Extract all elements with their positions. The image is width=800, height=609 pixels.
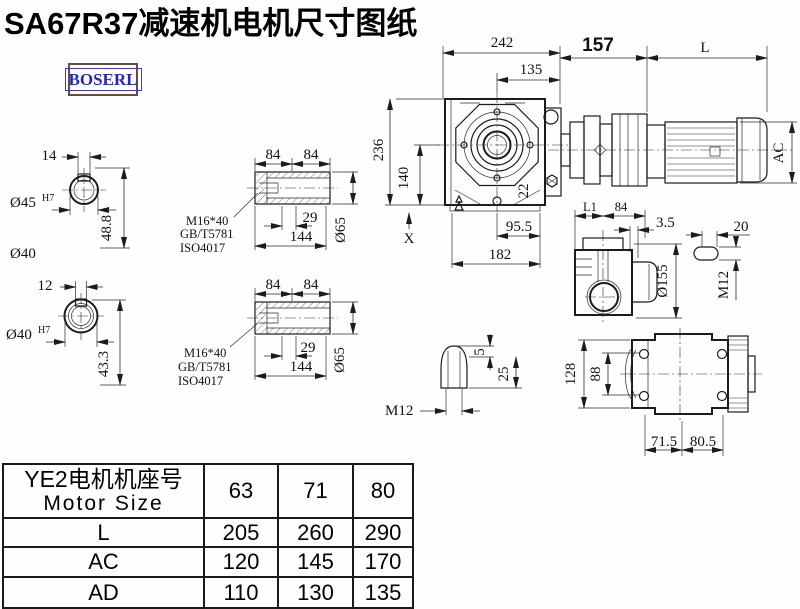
label-std2: ISO4017	[178, 374, 223, 388]
cell-AD-80: 135	[353, 577, 413, 608]
dim-bore-45: Ø45	[10, 195, 36, 211]
label-thread: M16*40	[184, 346, 226, 360]
dim-3-5: 3.5	[656, 215, 675, 231]
dim-height-48-8: 48.8	[99, 215, 115, 241]
cell-AC-63: 120	[204, 547, 278, 577]
dim-88: 88	[588, 367, 604, 382]
dim-L: L	[700, 40, 709, 56]
dim-25: 25	[496, 367, 512, 382]
cell-AC-80: 170	[353, 547, 413, 577]
dim-157: 157	[582, 35, 614, 56]
row-label-AD: AD	[3, 577, 204, 608]
dim-5: 5	[472, 348, 488, 356]
drawing-sheet: SA67R37减速机电机尺寸图纸 BOSERL 14	[0, 0, 800, 609]
dim-bore-40-fit: H7	[38, 325, 50, 336]
dim-140: 140	[396, 167, 412, 190]
dim-M12: M12	[385, 403, 413, 419]
table-col-71: 71	[278, 464, 353, 518]
table-header-en: Motor Size	[4, 492, 203, 516]
dim-144: 144	[290, 229, 313, 245]
dim-dia-65: Ø65	[333, 217, 349, 243]
dim-29: 29	[301, 340, 316, 356]
cell-L-80: 290	[353, 518, 413, 547]
label-std2: ISO4017	[180, 241, 225, 255]
label-std1: GB/T5781	[180, 227, 233, 241]
dim-bore-40: Ø40	[6, 327, 32, 343]
dim-22: 22	[516, 184, 532, 199]
dim-242: 242	[491, 35, 514, 51]
table-row: AC 120 145 170	[3, 547, 413, 577]
dim-bore-45-fit: H7	[42, 193, 54, 204]
row-label-L: L	[3, 518, 204, 547]
technical-drawing: 14 Ø45 H7 48.8 Ø40 12	[0, 0, 800, 462]
cell-AC-71: 145	[278, 547, 353, 577]
table-header-cn: YE2电机机座号	[4, 466, 203, 492]
dim-80-5: 80.5	[690, 434, 716, 450]
table-col-80: 80	[353, 464, 413, 518]
view-gearbox-rear: 128 88 71.5 80.5	[563, 328, 762, 456]
row-label-AC: AC	[3, 547, 204, 577]
dim-height-43-3: 43.3	[96, 351, 112, 377]
dim-dia-65: Ø65	[332, 347, 348, 373]
table-header-motor-size: YE2电机机座号 Motor Size	[3, 464, 204, 518]
table-col-63: 63	[204, 464, 278, 518]
dim-20: 20	[734, 219, 749, 235]
cell-AD-63: 110	[204, 577, 278, 608]
dim-keyway-14: 14	[42, 148, 58, 164]
cell-L-71: 260	[278, 518, 353, 547]
dim-95-5: 95.5	[506, 219, 532, 235]
view-shaft-section-2: 12 Ø40 H7 43.3	[6, 278, 126, 385]
dim-84b: 84	[304, 147, 320, 163]
dim-84a: 84	[266, 277, 282, 293]
motor-size-table: YE2电机机座号 Motor Size 63 71 80 L 205 260 2…	[2, 463, 414, 609]
dim-84a: 84	[266, 147, 282, 163]
table-row: AD 110 130 135	[3, 577, 413, 608]
dim-outer-40: Ø40	[10, 246, 36, 262]
label-x-mark: X	[404, 231, 415, 247]
table-row: L 205 260 290	[3, 518, 413, 547]
dim-84b: 84	[304, 277, 320, 293]
view-stud-detail: 20 M12	[686, 219, 750, 300]
label-thread: M16*40	[186, 214, 228, 228]
dim-71-5: 71.5	[651, 434, 677, 450]
dim-135: 135	[520, 62, 543, 78]
cell-L-63: 205	[204, 518, 278, 547]
view-hollow-shaft-2: 84 84 M16*40 GB/T5781 ISO4017 29 144 Ø65	[178, 277, 358, 388]
dim-M12: M12	[716, 271, 732, 299]
dim-144: 144	[290, 359, 313, 375]
label-std1: GB/T5781	[178, 360, 231, 374]
view-plug-detail: 5 25 M12	[385, 334, 522, 419]
dim-84: 84	[615, 200, 628, 214]
dim-236: 236	[371, 138, 387, 161]
view-hollow-shaft-1: 84 84 M16*40 GB/T5781 ISO4017 29 144 Ø65	[180, 147, 358, 255]
dim-AC: AC	[771, 143, 787, 164]
dim-29: 29	[303, 210, 318, 226]
cell-AD-71: 130	[278, 577, 353, 608]
dim-dia-155: Ø155	[655, 264, 671, 297]
view-motor-assembly: 157 L AC	[548, 35, 797, 186]
dim-182: 182	[489, 247, 512, 263]
view-shaft-section-1: 14 Ø45 H7 48.8 Ø40	[10, 148, 130, 262]
dim-128: 128	[563, 363, 579, 386]
view-gearbox-front: 242 135 236 140 22 X 95.5 182	[371, 35, 568, 268]
dim-keyway-12: 12	[38, 278, 53, 294]
dim-L1: L1	[583, 200, 597, 214]
view-gearbox-side: L1 84 3.5 Ø155	[575, 200, 682, 325]
